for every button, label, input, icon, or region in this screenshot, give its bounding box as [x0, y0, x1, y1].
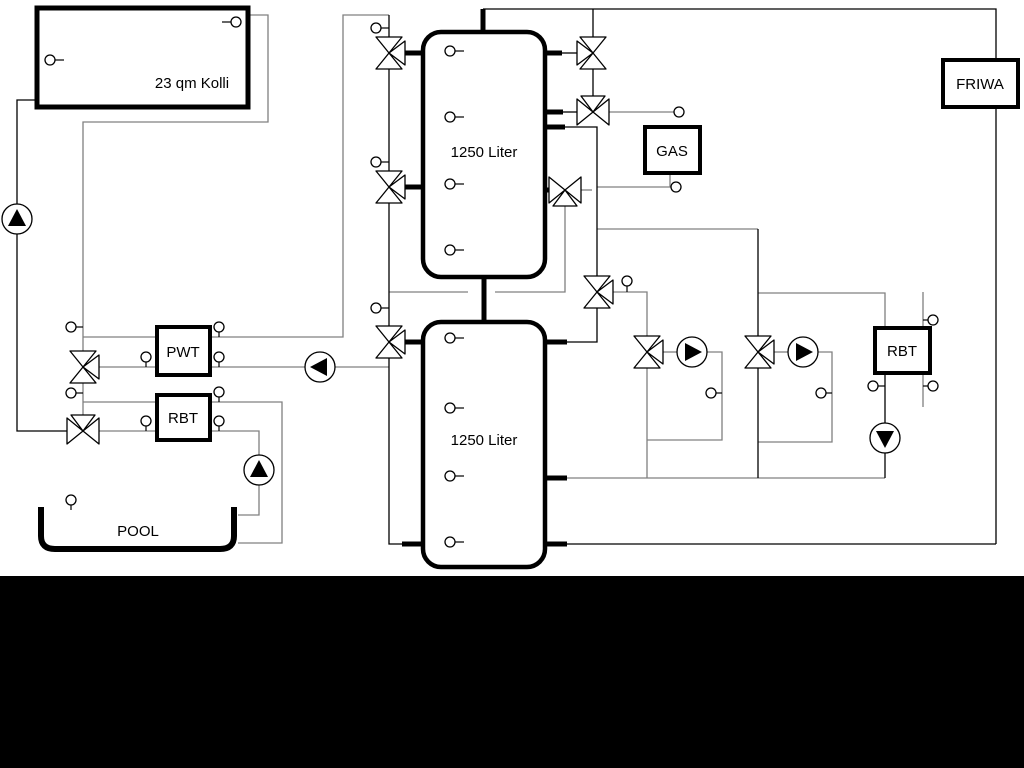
temp-sensor-icon: [214, 387, 224, 397]
three-way-valve-icon: [577, 96, 609, 125]
three-way-valve-icon: [376, 37, 405, 69]
three-way-valve-icon: [70, 351, 99, 383]
friwa-label: FRIWA: [956, 76, 1004, 93]
temp-sensor-icon: [231, 17, 241, 27]
temp-sensor-icon: [928, 315, 938, 325]
temp-sensor-icon: [214, 416, 224, 426]
heating-pump-2-icon: [788, 337, 818, 367]
temp-sensor-icon: [928, 381, 938, 391]
temp-sensor-icon: [371, 303, 381, 313]
rbt-pump-icon: [870, 423, 900, 453]
tank-upper-label: 1250 Liter: [451, 144, 518, 161]
three-way-valve-icon: [634, 336, 663, 368]
temp-sensor-icon: [214, 352, 224, 362]
three-way-valve-icon: [584, 276, 613, 308]
three-way-valve-icon: [577, 37, 606, 69]
solar-pump-icon: [2, 204, 32, 234]
three-way-valve-icon: [67, 415, 99, 444]
temp-sensor-icon: [371, 157, 381, 167]
schematic-page: 23 qm Kolli 1250 Liter 1250 Liter GAS FR…: [0, 0, 1024, 768]
temp-sensor-icon: [445, 471, 455, 481]
three-way-valve-icon: [745, 336, 774, 368]
temp-sensor-icon: [45, 55, 55, 65]
temp-sensor-icon: [816, 388, 826, 398]
temp-sensor-icon: [445, 537, 455, 547]
temp-sensor-icon: [706, 388, 716, 398]
temp-sensor-icon: [66, 322, 76, 332]
temp-sensor-icon: [445, 403, 455, 413]
temp-sensor-icon: [622, 276, 632, 286]
charge-pump-icon: [305, 352, 335, 382]
pwt-label: PWT: [166, 344, 199, 361]
temp-sensor-icon: [445, 245, 455, 255]
pool-label: POOL: [117, 523, 159, 540]
rbt-left-label: RBT: [168, 410, 198, 427]
tank-lower-label: 1250 Liter: [451, 432, 518, 449]
temp-sensor-icon: [445, 179, 455, 189]
hydraulic-schematic: 23 qm Kolli 1250 Liter 1250 Liter GAS FR…: [0, 0, 1024, 576]
temp-sensor-icon: [868, 381, 878, 391]
three-way-valve-icon: [376, 326, 405, 358]
temp-sensor-icon: [66, 388, 76, 398]
pool-pump-icon: [244, 455, 274, 485]
temp-sensor-icon: [141, 416, 151, 426]
temp-sensor-icon: [671, 182, 681, 192]
rbt-right-label: RBT: [887, 343, 917, 360]
gas-label: GAS: [656, 143, 688, 160]
temp-sensor-icon: [214, 322, 224, 332]
temp-sensor-icon: [445, 46, 455, 56]
temp-sensor-icon: [66, 495, 76, 505]
collector-label: 23 qm Kolli: [155, 75, 229, 92]
temp-sensor-icon: [674, 107, 684, 117]
bottom-black-band: [0, 576, 1024, 768]
heating-pump-1-icon: [677, 337, 707, 367]
temp-sensor-icon: [445, 333, 455, 343]
three-way-valve-icon: [376, 171, 405, 203]
temp-sensor-icon: [371, 23, 381, 33]
solar-collector-box: [37, 8, 248, 107]
three-way-valve-icon: [549, 177, 581, 206]
temp-sensor-icon: [445, 112, 455, 122]
temp-sensor-icon: [141, 352, 151, 362]
